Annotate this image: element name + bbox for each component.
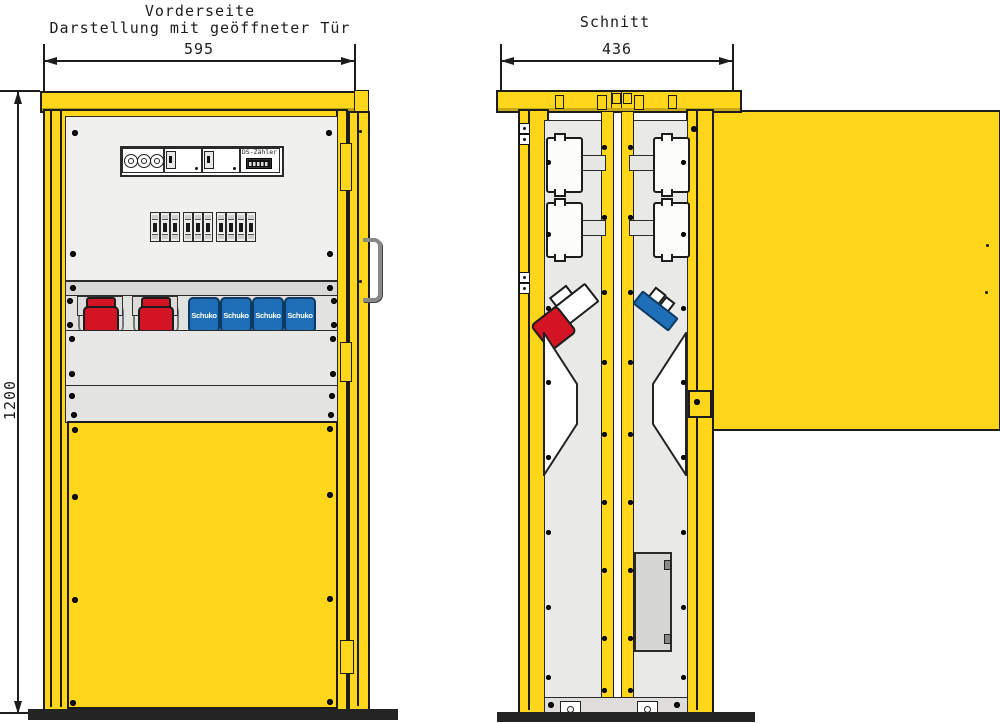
panel-screw (67, 298, 73, 304)
center-rail-right (621, 111, 634, 713)
wall-fitting (519, 134, 530, 145)
front-lower-yellow-panel (67, 421, 338, 709)
mounting-screw (628, 500, 633, 505)
terminal-dot (233, 167, 236, 170)
panel-screw (70, 285, 76, 291)
arrowhead-left (501, 57, 514, 65)
mounting-screw (628, 432, 633, 437)
breaker-module (236, 212, 246, 242)
panel-screw (71, 412, 77, 418)
mounting-screw (546, 605, 551, 610)
door-edge-screw (359, 130, 362, 133)
dimension-line (500, 60, 733, 62)
schuko-label: Schuko (287, 311, 312, 320)
panel-screw (72, 427, 78, 433)
roof-tab (597, 95, 607, 110)
dimension-line (43, 60, 355, 62)
panel-screw (327, 492, 333, 498)
panel-screw (69, 336, 75, 342)
mounting-screw (602, 360, 607, 365)
mounting-screw (681, 232, 686, 237)
extension-line-left (43, 44, 45, 91)
breaker-module (226, 212, 236, 242)
roof-center-joint (621, 91, 622, 108)
panel-screw (327, 699, 333, 705)
panel-screw (70, 251, 76, 257)
mounting-screw (681, 455, 686, 460)
mounting-screw (628, 290, 633, 295)
mounting-screw (602, 636, 607, 641)
panel-screw (327, 251, 333, 257)
arrowhead-right (719, 57, 732, 65)
breaker-module (160, 212, 170, 242)
breaker-module (193, 212, 203, 242)
door-screw-hole (986, 244, 989, 247)
schuko-label: Schuko (223, 311, 248, 320)
wall-fitting (519, 283, 530, 294)
door-edge-line (357, 113, 359, 706)
front-open-door-edge (348, 111, 370, 712)
mounting-screw (546, 380, 551, 385)
panel-screw (69, 371, 75, 377)
terminal-dot (195, 167, 198, 170)
meter-digits (249, 162, 268, 166)
breaker-module (203, 212, 213, 242)
meter-label: DS-Zähler (241, 148, 278, 156)
technical-drawing-distribution-cabinet: Vorderseite Darstellung mit geöffneter T… (0, 0, 1000, 723)
front-height-dim-label: 1200 (1, 378, 17, 422)
left-wall-inner-line (528, 111, 530, 710)
door-latch-keeper-top (340, 143, 352, 191)
door-edge-screw (359, 280, 362, 283)
floor-screw (548, 702, 554, 708)
mounting-screw (681, 306, 686, 311)
breaker-module (170, 212, 180, 242)
mounting-screw (546, 675, 551, 680)
panel-screw (331, 298, 337, 304)
extension-line-left (500, 44, 502, 90)
panel-screw (72, 494, 78, 500)
front-left-frame-line (50, 111, 52, 707)
mounting-screw (602, 215, 607, 220)
mounting-screw (628, 360, 633, 365)
mounting-screw (602, 145, 607, 150)
mounting-screw (546, 455, 551, 460)
front-view-title-line1: Vorderseite (40, 2, 360, 20)
mounting-screw (628, 568, 633, 573)
mounting-screw (628, 636, 633, 641)
front-equipment-panel (65, 116, 338, 282)
section-schuko-socket-blue (628, 286, 684, 338)
mounting-screw (681, 605, 686, 610)
roof-tab (634, 95, 644, 110)
breaker-module (150, 212, 160, 242)
mounting-screw (546, 306, 551, 311)
mounting-screw (546, 530, 551, 535)
section-base-plate (497, 712, 755, 722)
panel-screw (72, 130, 78, 136)
mounting-screw (602, 688, 607, 693)
mounting-screw (546, 160, 551, 165)
panel-screw (69, 393, 75, 399)
mounting-screw (602, 290, 607, 295)
breaker-module (246, 212, 256, 242)
front-blank-panel-2 (65, 385, 338, 423)
mounting-screw (681, 380, 686, 385)
dimension-line-vertical (17, 92, 19, 714)
panel-screw (331, 322, 337, 328)
center-rail-left (601, 111, 614, 713)
socket-back-box (546, 202, 583, 258)
mounting-screw (681, 530, 686, 535)
mounting-screw (602, 432, 607, 437)
arrowhead-right (341, 57, 354, 65)
extension-line-top (0, 90, 40, 92)
mounting-screw (602, 500, 607, 505)
front-base-plate (28, 709, 398, 720)
extension-line-bottom (0, 712, 28, 714)
arrowhead-up (14, 91, 22, 104)
front-width-dim-label: 595 (164, 40, 234, 58)
panel-screw (329, 393, 335, 399)
roof-tab (623, 93, 632, 104)
door-screw-hole (985, 291, 988, 294)
roof-tab (668, 95, 677, 109)
socket-back-box (653, 202, 690, 258)
mounting-screw (546, 232, 551, 237)
schuko-socket: Schuko (252, 297, 284, 333)
schuko-socket: Schuko (220, 297, 252, 333)
switch-lever-icon (166, 151, 176, 169)
panel-screw (72, 597, 78, 603)
section-width-dim-label: 436 (582, 40, 652, 58)
breaker-module (183, 212, 193, 242)
extension-line-right (732, 44, 734, 90)
door-latch-keeper-mid (340, 342, 352, 382)
schuko-socket: Schuko (284, 297, 316, 333)
panel-screw (70, 700, 76, 706)
panel-screw (327, 596, 333, 602)
breaker-module (216, 212, 226, 242)
section-open-door (708, 110, 1000, 431)
socket-back-box (653, 137, 690, 193)
mounting-screw (628, 688, 633, 693)
roof-tab (555, 95, 564, 109)
mounting-screw (628, 145, 633, 150)
switch-lever-icon (204, 151, 214, 169)
mounting-screw (681, 160, 686, 165)
section-title: Schnitt (520, 13, 710, 31)
mounting-screw (602, 568, 607, 573)
floor-screw (674, 702, 680, 708)
panel-screw (330, 371, 336, 377)
d-fuse-icon (150, 154, 164, 168)
d-fuse-icon (124, 154, 138, 168)
wall-fitting (519, 272, 530, 283)
terminal-box (634, 552, 672, 652)
meter-display (246, 158, 272, 169)
panel-screw (330, 336, 336, 342)
panel-screw (327, 426, 333, 432)
roof-tab (612, 93, 621, 104)
front-view-title-line2: Darstellung mit geöffneter Tür (20, 19, 380, 37)
arrowhead-left (44, 57, 57, 65)
front-left-frame-line2 (60, 111, 62, 707)
panel-screw (328, 412, 334, 418)
panel-screw (327, 285, 333, 291)
door-handle (363, 238, 382, 302)
d-fuse-icon (137, 154, 151, 168)
mounting-screw (628, 215, 633, 220)
door-latch-screw (691, 126, 697, 132)
schuko-label: Schuko (255, 311, 280, 320)
front-blank-panel-1 (65, 330, 338, 387)
socket-back-box (546, 137, 583, 193)
door-hinge-bracket (688, 390, 712, 418)
mounting-screw (681, 675, 686, 680)
schuko-socket: Schuko (188, 297, 220, 333)
schuko-label: Schuko (191, 311, 216, 320)
wall-fitting (519, 123, 530, 134)
panel-screw (326, 130, 332, 136)
panel-screw (67, 322, 73, 328)
extension-line-right (354, 44, 356, 91)
door-hinge-bottom (340, 640, 354, 674)
